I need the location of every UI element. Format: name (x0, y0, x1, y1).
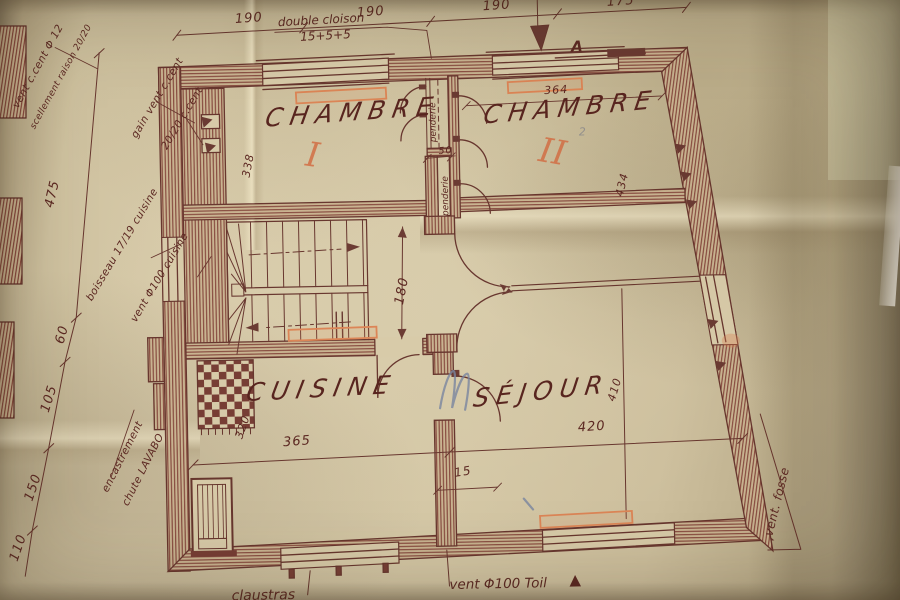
penderie-label-lower: penderie (441, 176, 452, 216)
note-vent-fosse: vent. fosse (762, 466, 792, 538)
dim-left-475: 475 (42, 179, 63, 209)
room-label-chambre1: CHAMBRE (263, 91, 442, 133)
dim-chambre1-depth: 338 (240, 152, 257, 178)
room-numeral-chambre1: I (303, 135, 322, 176)
dim-chambre2-width: 364 (544, 83, 569, 97)
room-label-chambre2: CHAMBRE (482, 85, 660, 130)
section-arrow-icon: ▲ (569, 571, 581, 589)
dim-cuisine-depth: 320 (233, 413, 253, 440)
dim-chambre2-depth: 434 (613, 171, 631, 197)
room-label-cuisine: CUISINE (244, 370, 399, 407)
penderie-label-upper: penderie (428, 102, 439, 142)
note-vent-ccent: vent c.cent Φ 12 (10, 22, 66, 110)
dim-top-1: 190 (234, 10, 263, 27)
note-vent-toil: vent Φ100 Toil (449, 575, 547, 593)
dim-top-4: 175 (606, 0, 635, 10)
dim-left-60: 60 (53, 324, 72, 346)
dim-penderie: 50 (438, 145, 453, 157)
dim-top-3: 190 (482, 0, 511, 14)
dim-left-150: 150 (22, 472, 45, 503)
room-label-sejour: SÉJOUR (472, 369, 612, 413)
dim-left-105: 105 (38, 383, 60, 414)
note-double-cloison: double cloison (278, 11, 365, 30)
pencil-note: 2 (579, 125, 586, 138)
dim-hall: 180 (392, 276, 412, 306)
note-claustras: claustras (231, 587, 295, 600)
dim-left-110: 110 (7, 532, 30, 563)
floorplan-photo: 190 190 190 175 double cloison 15+5+5 A … (0, 0, 900, 600)
labels-layer: 190 190 190 175 double cloison 15+5+5 A … (0, 0, 900, 600)
dim-partition: 15 (453, 463, 472, 480)
room-numeral-chambre2: II (536, 130, 569, 174)
note-vent-cuisine: vent Φ100 cuisine (128, 231, 191, 325)
note-double-cloison-size: 15+5+5 (300, 27, 351, 44)
dim-cuisine-width: 365 (283, 433, 312, 450)
section-letter: A (571, 37, 583, 55)
dim-sejour-width: 420 (577, 419, 606, 436)
